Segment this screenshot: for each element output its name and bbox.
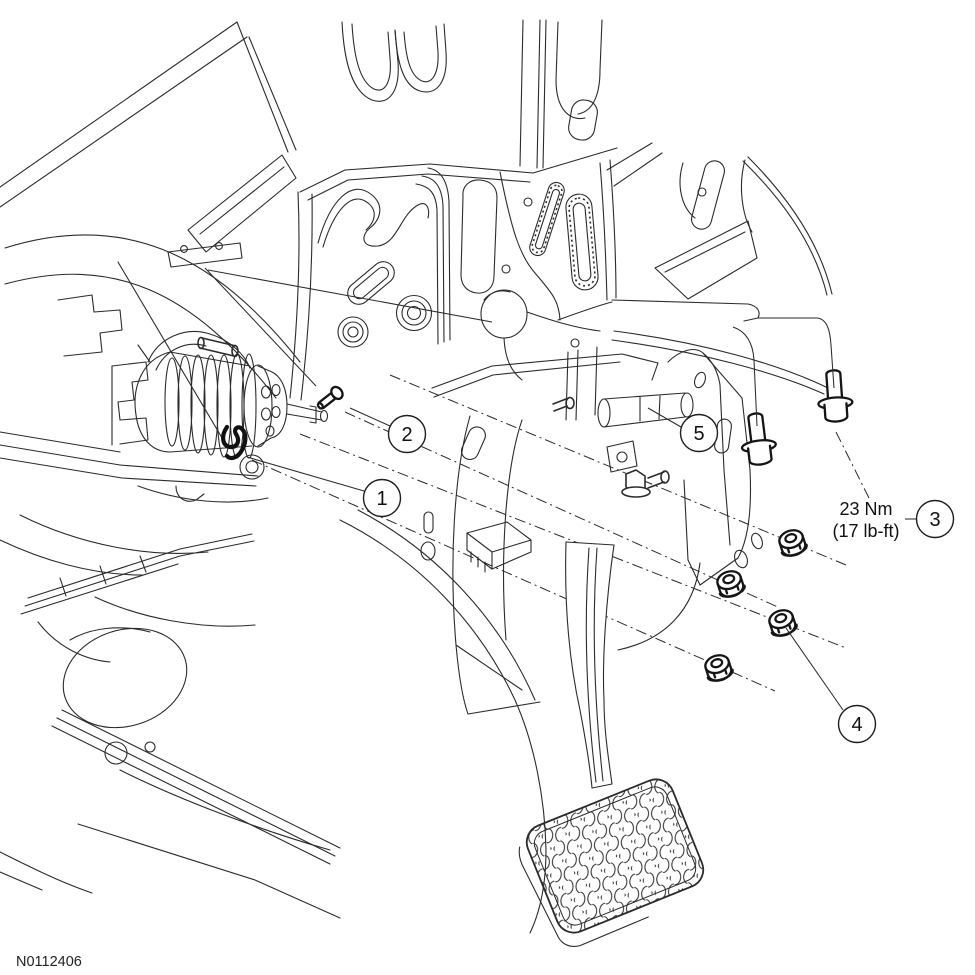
torque-note-line2: (17 lb-ft) [832,521,899,541]
firewall-panel [290,20,617,400]
callout-1: 1 [364,480,401,517]
stud-center-lines [252,375,869,691]
callout-2-label: 2 [401,424,412,446]
callout-1-label: 1 [376,488,387,510]
mounting-bolt-right [816,369,853,422]
floor-pan [0,510,546,933]
pedal-pad [511,774,714,954]
callout-5: 5 [681,415,718,452]
firewall-grommet [338,296,432,348]
callout-2: 2 [389,416,426,453]
torque-note: 23 Nm (17 lb-ft) [832,499,899,541]
pivot-bolt [622,470,669,497]
brake-booster [0,295,328,502]
leader-lines [205,268,916,710]
figure-id: N0112406 [16,954,82,970]
callout-4-label: 4 [851,714,862,736]
booster-bolt [315,385,345,412]
callout-4: 4 [839,706,876,743]
booster-nuts [702,527,808,684]
callout-5-label: 5 [693,423,704,445]
service-manual-figure: 1 2 3 4 5 23 Nm (17 lb-ft) N0112406 [0,0,975,975]
brake-pedal-assembly-diagram: 1 2 3 4 5 23 Nm (17 lb-ft) N0112406 [0,0,975,975]
callout-3-label: 3 [929,509,940,531]
torque-note-line1: 23 Nm [839,499,892,519]
callout-3: 3 [917,501,954,538]
brake-pedal-arm [566,542,614,788]
